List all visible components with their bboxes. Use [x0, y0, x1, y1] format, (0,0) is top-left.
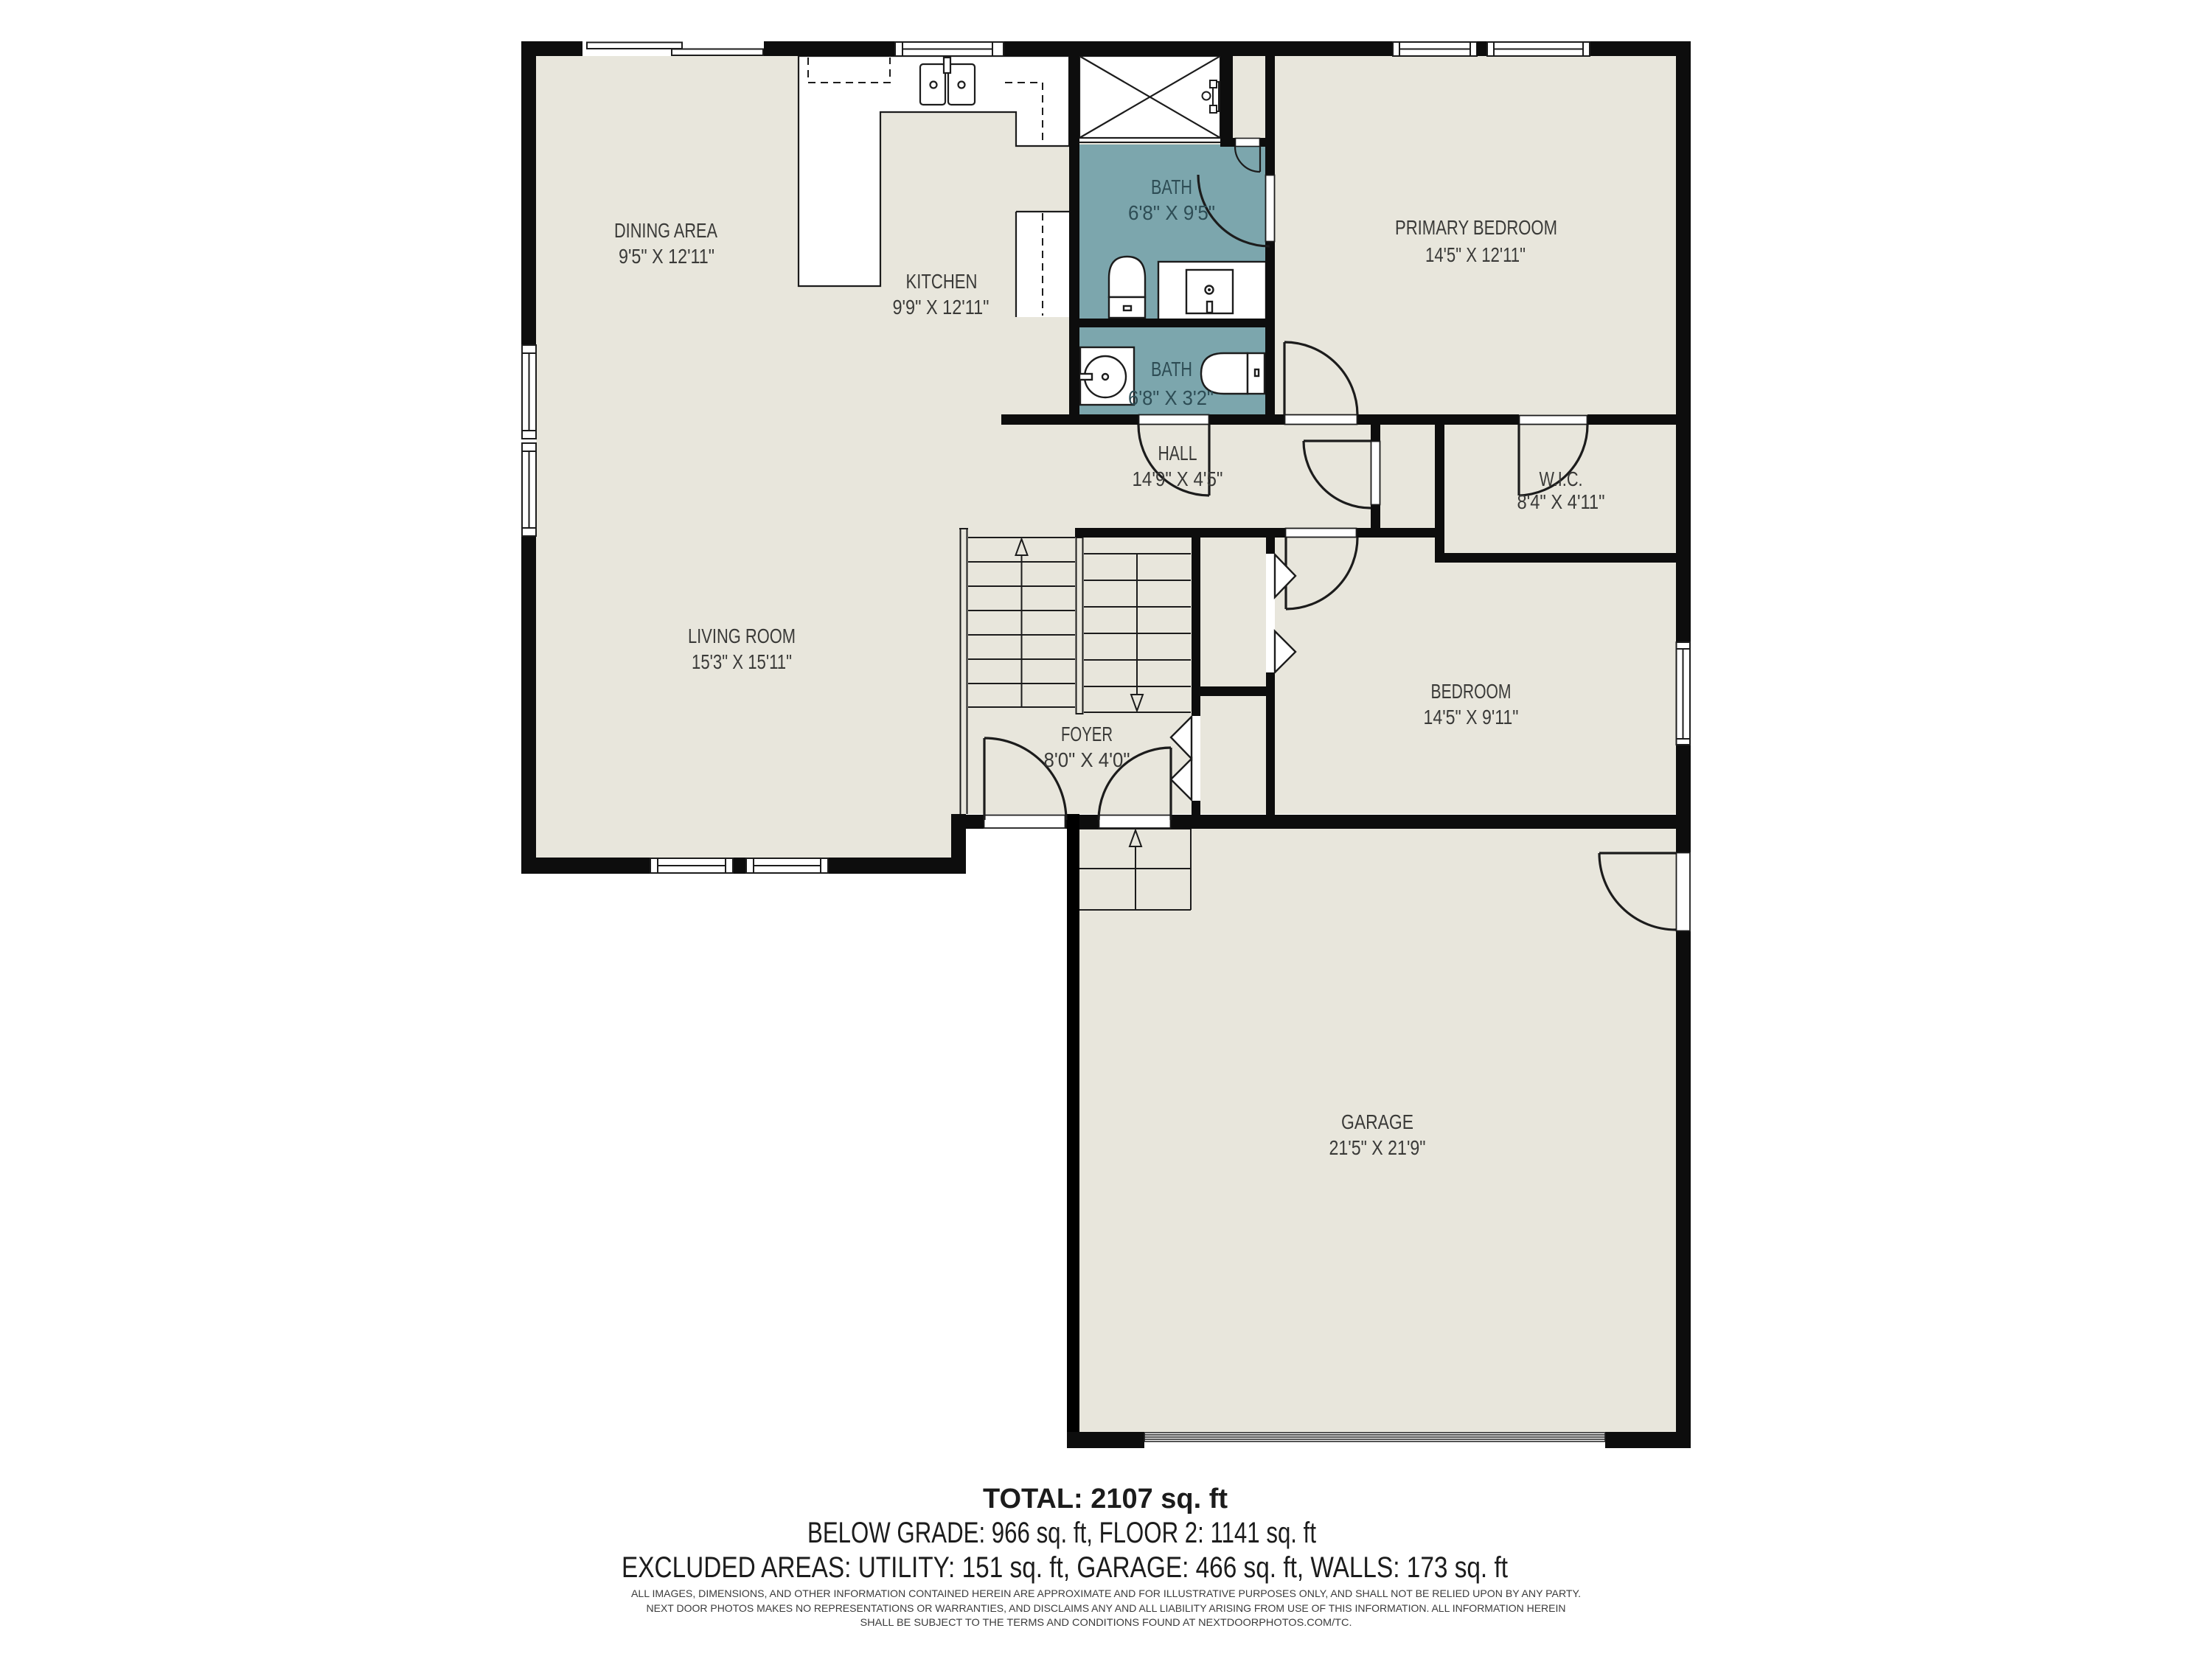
svg-text:9'5" X 12'11": 9'5" X 12'11": [619, 245, 714, 268]
svg-text:W.I.C.: W.I.C.: [1540, 467, 1583, 490]
svg-text:BEDROOM: BEDROOM: [1431, 680, 1512, 703]
svg-text:BATH: BATH: [1151, 175, 1192, 198]
svg-text:TOTAL: 2107 sq. ft: TOTAL: 2107 sq. ft: [983, 1484, 1228, 1514]
svg-text:GARAGE: GARAGE: [1341, 1110, 1413, 1133]
svg-text:NEXT DOOR PHOTOS MAKES NO REPR: NEXT DOOR PHOTOS MAKES NO REPRESENTATION…: [647, 1602, 1566, 1614]
svg-text:BELOW GRADE: 966 sq. ft, FLOOR: BELOW GRADE: 966 sq. ft, FLOOR 2: 1141 s…: [807, 1517, 1316, 1549]
svg-text:KITCHEN: KITCHEN: [906, 270, 978, 293]
svg-text:21'5" X 21'9": 21'5" X 21'9": [1329, 1136, 1426, 1159]
svg-text:SHALL BE SUBJECT TO THE TERMS: SHALL BE SUBJECT TO THE TERMS AND CONDIT…: [860, 1616, 1352, 1628]
svg-text:15'3" X 15'11": 15'3" X 15'11": [692, 650, 792, 673]
svg-text:14'5" X 9'11": 14'5" X 9'11": [1424, 706, 1519, 728]
svg-text:ALL IMAGES, DIMENSIONS, AND OT: ALL IMAGES, DIMENSIONS, AND OTHER INFORM…: [631, 1587, 1581, 1599]
svg-text:14'5" X 12'11": 14'5" X 12'11": [1425, 243, 1526, 266]
svg-text:9'9" X 12'11": 9'9" X 12'11": [893, 296, 990, 319]
svg-text:DINING AREA: DINING AREA: [614, 219, 717, 242]
svg-text:LIVING ROOM: LIVING ROOM: [688, 625, 796, 647]
svg-text:BATH: BATH: [1151, 358, 1192, 380]
svg-text:6'8" X 3'2": 6'8" X 3'2": [1128, 386, 1214, 409]
svg-text:8'4" X 4'11": 8'4" X 4'11": [1517, 490, 1605, 513]
svg-text:6'8" X 9'5": 6'8" X 9'5": [1128, 201, 1215, 224]
svg-text:PRIMARY BEDROOM: PRIMARY BEDROOM: [1395, 216, 1557, 239]
svg-text:8'0" X 4'0": 8'0" X 4'0": [1044, 748, 1130, 771]
svg-text:FOYER: FOYER: [1061, 723, 1113, 745]
svg-text:HALL: HALL: [1158, 442, 1197, 465]
svg-text:EXCLUDED AREAS: UTILITY: 151 s: EXCLUDED AREAS: UTILITY: 151 sq. ft, GAR…: [622, 1551, 1508, 1584]
svg-text:14'9" X 4'5": 14'9" X 4'5": [1133, 467, 1223, 490]
